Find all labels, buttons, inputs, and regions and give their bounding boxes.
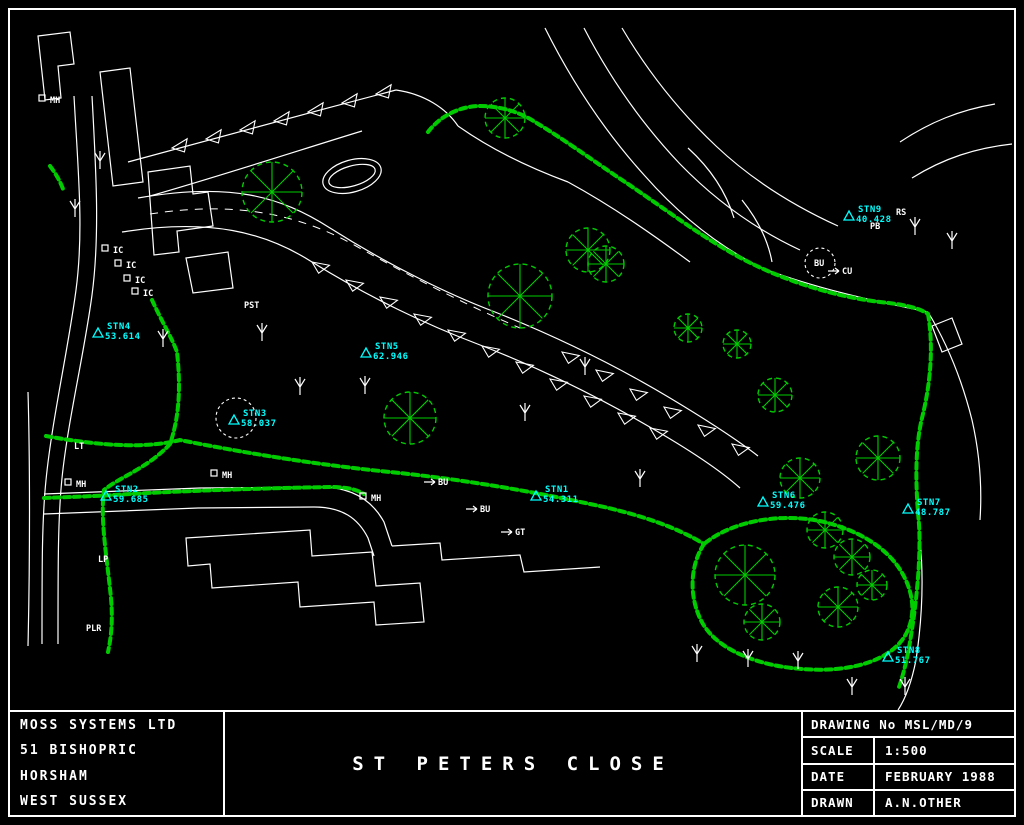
- cad-drawing-page: ICICICICMHMHMHMHBUBUGTPSTLTLPPLRBUCURSPB…: [0, 0, 1024, 825]
- point-label: PST: [244, 301, 259, 311]
- point-label-text: IC: [135, 276, 145, 286]
- point-label-text: RS: [896, 208, 906, 218]
- company-name: MOSS SYSTEMS LTD: [20, 718, 213, 733]
- station-name: STN6: [772, 491, 796, 501]
- point-label-text: PLR: [86, 624, 102, 634]
- station-name: STN4: [107, 322, 131, 332]
- station-elevation: 58.037: [241, 419, 277, 429]
- survey-station: STN940.428: [844, 205, 892, 225]
- station-name: STN3: [243, 409, 267, 419]
- square-marker-icon: [211, 470, 217, 476]
- point-label: LT: [74, 442, 84, 452]
- point-label-text: GT: [515, 528, 525, 538]
- title-block: MOSS SYSTEMS LTD 51 BISHOPRIC HORSHAM WE…: [8, 710, 1016, 817]
- point-label-text: IC: [126, 261, 136, 271]
- point-label: BU: [424, 478, 448, 488]
- tree-symbols: [242, 98, 900, 640]
- survey-station: STN748.787: [903, 498, 951, 518]
- survey-station: STN659.476: [758, 491, 806, 511]
- point-label: BU: [805, 248, 835, 278]
- survey-station: STN358.037: [229, 409, 277, 429]
- point-symbols: [70, 151, 957, 695]
- drawn-row: DRAWN A.N.OTHER: [803, 791, 1014, 815]
- station-elevation: 48.787: [915, 508, 951, 518]
- building-outlines: [38, 32, 424, 625]
- square-marker-icon: [65, 479, 71, 485]
- survey-station: STN562.946: [361, 342, 409, 362]
- station-triangle-icon: [844, 211, 854, 220]
- company-address-2: HORSHAM: [20, 769, 213, 784]
- point-label: RS: [896, 208, 906, 218]
- company-address-1: 51 BISHOPRIC: [20, 743, 213, 758]
- station-triangle-icon: [229, 415, 239, 424]
- point-label: MH: [211, 470, 232, 481]
- company-block: MOSS SYSTEMS LTD 51 BISHOPRIC HORSHAM WE…: [10, 712, 225, 815]
- station-name: STN7: [917, 498, 941, 508]
- station-name: STN2: [115, 485, 139, 495]
- point-label-text: MH: [76, 480, 86, 490]
- point-label-text: MH: [222, 471, 232, 481]
- point-label: MH: [39, 95, 60, 106]
- station-elevation: 59.685: [113, 495, 149, 505]
- hedge-lines: [44, 106, 931, 690]
- stations-layer: STN154.311STN259.685STN358.037STN453.614…: [93, 205, 951, 666]
- station-triangle-icon: [93, 328, 103, 337]
- square-marker-icon: [102, 245, 108, 251]
- point-label: GT: [501, 528, 525, 538]
- point-labels-layer: ICICICICMHMHMHMHBUBUGTPSTLTLPPLRBUCURSPB: [39, 95, 906, 634]
- arrow-tick-icon: [501, 529, 512, 535]
- station-name: STN8: [897, 646, 921, 656]
- date-label: DATE: [803, 765, 875, 789]
- point-label: IC: [115, 260, 136, 271]
- station-elevation: 51.767: [895, 656, 931, 666]
- station-elevation: 59.476: [770, 501, 806, 511]
- station-elevation: 62.946: [373, 352, 409, 362]
- point-label-text: IC: [113, 246, 123, 256]
- point-label-text: MH: [371, 494, 381, 504]
- drawing-title: ST PETERS CLOSE: [352, 753, 674, 775]
- point-label: PLR: [86, 624, 102, 634]
- point-label: CU: [828, 267, 852, 277]
- point-label-text: LT: [74, 442, 84, 452]
- square-marker-icon: [124, 275, 130, 281]
- point-label-text: BU: [814, 259, 824, 269]
- station-elevation: 53.614: [105, 332, 141, 342]
- square-marker-icon: [115, 260, 121, 266]
- point-label: IC: [132, 288, 153, 299]
- point-label-text: BU: [480, 505, 490, 515]
- survey-station: STN453.614: [93, 322, 141, 342]
- point-label: IC: [124, 275, 145, 286]
- scale-label: SCALE: [803, 738, 875, 762]
- date-value: FEBRUARY 1988: [875, 769, 996, 784]
- point-label-text: LP: [98, 555, 108, 565]
- date-row: DATE FEBRUARY 1988: [803, 765, 1014, 791]
- point-label: IC: [102, 245, 123, 256]
- drawing-number: DRAWING No MSL/MD/9: [803, 712, 1014, 738]
- arrow-tick-icon: [424, 479, 435, 485]
- station-name: STN1: [545, 485, 569, 495]
- site-plan-svg: ICICICICMHMHMHMHBUBUGTPSTLTLPPLRBUCURSPB…: [0, 0, 1024, 825]
- arrow-tick-icon: [466, 506, 477, 512]
- station-elevation: 54.311: [543, 495, 579, 505]
- survey-station: STN154.311: [531, 485, 579, 505]
- drawn-label: DRAWN: [803, 791, 875, 815]
- scale-value: 1:500: [875, 743, 928, 758]
- station-elevation: 40.428: [856, 215, 892, 225]
- company-address-3: WEST SUSSEX: [20, 794, 213, 809]
- point-label: MH: [65, 479, 86, 490]
- square-marker-icon: [132, 288, 138, 294]
- drawing-info-block: DRAWING No MSL/MD/9 SCALE 1:500 DATE FEB…: [801, 712, 1014, 815]
- point-label: LP: [98, 555, 108, 565]
- drawn-value: A.N.OTHER: [875, 795, 962, 810]
- point-label-text: BU: [438, 478, 448, 488]
- station-name: STN5: [375, 342, 399, 352]
- point-label-text: CU: [842, 267, 852, 277]
- title-area: ST PETERS CLOSE: [225, 712, 801, 815]
- station-triangle-icon: [758, 497, 768, 506]
- point-label: BU: [466, 505, 490, 515]
- station-name: STN9: [858, 205, 882, 215]
- station-triangle-icon: [361, 348, 371, 357]
- point-label-text: IC: [143, 289, 153, 299]
- survey-station: STN851.767: [883, 646, 931, 666]
- point-label-text: PST: [244, 301, 259, 311]
- embankment-marks: [171, 85, 750, 458]
- point-label-text: MH: [50, 96, 60, 106]
- scale-row: SCALE 1:500: [803, 738, 1014, 764]
- station-triangle-icon: [903, 504, 913, 513]
